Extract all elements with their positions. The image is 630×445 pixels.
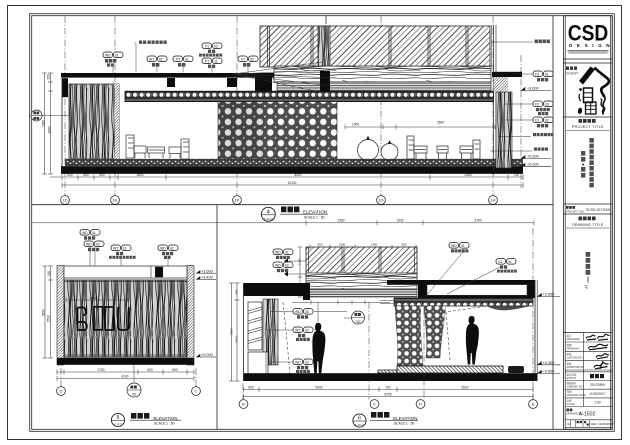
svg-text:B: B [242, 402, 245, 407]
svg-text:5000: 5000 [315, 386, 322, 390]
svg-text:ELEVATION: ELEVATION [303, 210, 327, 215]
svg-text:02: 02 [170, 246, 174, 250]
svg-text:02: 02 [250, 57, 254, 61]
svg-text:350: 350 [47, 74, 51, 80]
svg-text:F2: F2 [241, 57, 245, 61]
svg-text:E: E [532, 402, 535, 407]
svg-text:A-1F12: A-1F12 [263, 217, 273, 221]
svg-text:3500: 3500 [41, 309, 45, 316]
svg-text:2400: 2400 [235, 336, 239, 343]
svg-text:F2: F2 [535, 102, 539, 106]
svg-text:800: 800 [172, 368, 178, 372]
svg-text:2300: 2300 [42, 120, 46, 127]
svg-text:3520: 3520 [461, 386, 468, 390]
svg-text:4: 4 [267, 209, 270, 215]
svg-text:12130: 12130 [288, 181, 297, 185]
svg-text:A-1502: A-1502 [579, 412, 596, 418]
svg-text:01: 01 [461, 244, 465, 248]
svg-text:05: 05 [132, 392, 136, 396]
svg-text:WD: WD [295, 310, 301, 314]
svg-text:02: 02 [96, 242, 100, 246]
svg-text:910: 910 [47, 271, 51, 277]
svg-text:WD: WD [295, 360, 301, 364]
svg-text:+3.500: +3.500 [201, 269, 213, 273]
svg-text:C: C [195, 389, 198, 394]
svg-text:02: 02 [285, 263, 289, 267]
svg-text:1420: 1420 [90, 296, 97, 300]
svg-text:WD: WD [82, 231, 88, 235]
svg-text:审核: 审核 [567, 352, 573, 356]
svg-text:1D: 1D [62, 198, 67, 203]
svg-text:WD: WD [275, 250, 281, 254]
svg-text:设计阶段: 设计阶段 [567, 372, 578, 376]
svg-text:00: 00 [567, 422, 571, 426]
svg-text:PT: PT [205, 59, 209, 63]
svg-text:设计: 设计 [567, 334, 573, 338]
svg-text:4100: 4100 [121, 375, 128, 379]
svg-text:PROJECT NO:: PROJECT NO: [566, 210, 585, 214]
svg-text:比例: 比例 [567, 398, 573, 402]
svg-text:600: 600 [67, 173, 73, 177]
svg-text:01: 01 [123, 246, 127, 250]
svg-text:+2.600: +2.600 [543, 293, 555, 297]
svg-text:5: 5 [117, 415, 120, 421]
svg-text:DESIGNER: DESIGNER [567, 338, 580, 341]
svg-text:1F: 1F [235, 198, 240, 203]
svg-text:01: 01 [159, 57, 163, 61]
svg-text:1530: 1530 [396, 218, 403, 222]
svg-text:DRAWING TITLE: DRAWING TITLE [572, 223, 604, 227]
svg-text:A-1F12: A-1F12 [113, 422, 123, 426]
svg-text:D: D [60, 389, 63, 394]
svg-text:3500: 3500 [437, 121, 444, 125]
svg-text:600: 600 [147, 368, 153, 372]
svg-text:01: 01 [508, 260, 512, 264]
svg-text:+0.000: +0.000 [201, 353, 213, 357]
svg-text:1800: 1800 [48, 126, 52, 133]
svg-text:SCALE: SCALE [567, 403, 576, 406]
svg-text:WT: WT [149, 57, 154, 61]
svg-text:3700: 3700 [474, 218, 481, 222]
svg-text:1350: 1350 [371, 243, 378, 247]
svg-text:SCALE 1 : 50: SCALE 1 : 50 [394, 421, 415, 425]
svg-text:项目编号: 项目编号 [567, 381, 578, 385]
svg-text:WT: WT [113, 246, 118, 250]
svg-text:03: 03 [305, 310, 309, 314]
svg-text:2400: 2400 [464, 173, 471, 177]
svg-text:APPROVED BY: APPROVED BY [567, 366, 585, 369]
svg-text:CSD: CSD [568, 21, 609, 46]
svg-text:WD: WD [105, 53, 111, 57]
svg-text:F2: F2 [535, 118, 539, 122]
svg-text:PT: PT [176, 57, 180, 61]
svg-text:DRAWN BY: DRAWN BY [567, 347, 581, 350]
svg-text:2590: 2590 [47, 315, 51, 322]
svg-text:1F: 1F [584, 285, 589, 290]
svg-text:03: 03 [305, 360, 309, 364]
svg-text:01: 01 [115, 53, 119, 57]
svg-text:02: 02 [214, 44, 218, 48]
svg-text:01: 01 [185, 57, 189, 61]
svg-text:500: 500 [235, 289, 239, 294]
svg-text:730: 730 [513, 173, 519, 177]
svg-text:11: 11 [214, 59, 218, 63]
svg-text:20170999: 20170999 [590, 383, 605, 387]
svg-text:8000: 8000 [294, 173, 301, 177]
svg-text:1100: 1100 [297, 258, 301, 265]
svg-text:SCSD-2017009: SCSD-2017009 [586, 208, 610, 212]
svg-text:+3.600: +3.600 [527, 87, 539, 91]
svg-text:日期: 日期 [567, 390, 573, 394]
svg-text:+3.400: +3.400 [201, 276, 213, 280]
svg-text:6: 6 [358, 416, 361, 422]
svg-text:2350: 2350 [337, 218, 344, 222]
svg-text:01: 01 [92, 231, 96, 235]
svg-text:WD: WD [160, 246, 166, 250]
svg-text:A-1F12: A-1F12 [355, 423, 365, 427]
svg-text:1H: 1H [490, 198, 495, 203]
svg-text:制图: 制图 [567, 343, 573, 347]
svg-text:+0.000: +0.000 [527, 162, 539, 166]
svg-text:1:50: 1:50 [594, 401, 601, 405]
svg-text:C: C [373, 402, 376, 407]
svg-text:ELEVATION: ELEVATION [393, 416, 417, 421]
svg-text:GL: GL [498, 260, 503, 264]
svg-text:D: D [419, 402, 422, 407]
svg-text:WD: WD [451, 244, 457, 248]
svg-text:01: 01 [285, 250, 289, 254]
svg-text:WD: WD [86, 242, 92, 246]
svg-text:CHECKED BY: CHECKED BY [567, 357, 584, 360]
svg-text:02: 02 [305, 328, 309, 332]
svg-text:950: 950 [401, 243, 406, 247]
svg-text:+0.300: +0.300 [527, 155, 539, 159]
svg-text:11/30/2017: 11/30/2017 [589, 392, 605, 396]
svg-text:WD: WD [275, 263, 281, 267]
svg-text:950: 950 [317, 243, 322, 247]
svg-text:2900: 2900 [229, 328, 233, 335]
svg-text:DESIGN: DESIGN [569, 43, 614, 48]
svg-text:SCALE 1 : 50: SCALE 1 : 50 [304, 216, 325, 220]
svg-text:1800: 1800 [136, 173, 143, 177]
svg-text:8750: 8750 [384, 393, 391, 397]
svg-text:05: 05 [356, 320, 360, 324]
svg-text:SCALE 1 : 50: SCALE 1 : 50 [154, 421, 175, 425]
svg-text:JOB/DWG NO: JOB/DWG NO [567, 386, 583, 389]
svg-text:+0.300: +0.300 [543, 361, 555, 365]
svg-text:03: 03 [545, 102, 549, 106]
svg-text:WT: WT [295, 328, 300, 332]
svg-text:2700: 2700 [97, 368, 104, 372]
svg-text:F1: F1 [205, 44, 209, 48]
svg-text:PROJECT TITLE: PROJECT TITLE [572, 125, 604, 129]
svg-text:700: 700 [385, 386, 391, 390]
svg-text:CLIENT:: CLIENT: [566, 72, 579, 76]
svg-text:600: 600 [83, 173, 89, 177]
svg-text:600: 600 [99, 173, 105, 177]
svg-text:+0.000: +0.000 [543, 370, 555, 374]
svg-text:REV. 11/30/2017: REV. 11/30/2017 [591, 422, 614, 426]
svg-text:1000: 1000 [352, 123, 359, 127]
svg-text:600: 600 [248, 386, 254, 390]
svg-text:1G: 1G [378, 198, 383, 203]
svg-text:1E: 1E [113, 198, 118, 203]
svg-text:批准: 批准 [567, 362, 573, 366]
svg-text:01: 01 [545, 72, 549, 76]
svg-text:STATUS: STATUS [567, 377, 577, 380]
svg-text:DRAWING DATE: DRAWING DATE [567, 394, 586, 397]
svg-text:02: 02 [545, 118, 549, 122]
svg-text:F2: F2 [535, 72, 539, 76]
svg-text:1100: 1100 [339, 243, 346, 247]
